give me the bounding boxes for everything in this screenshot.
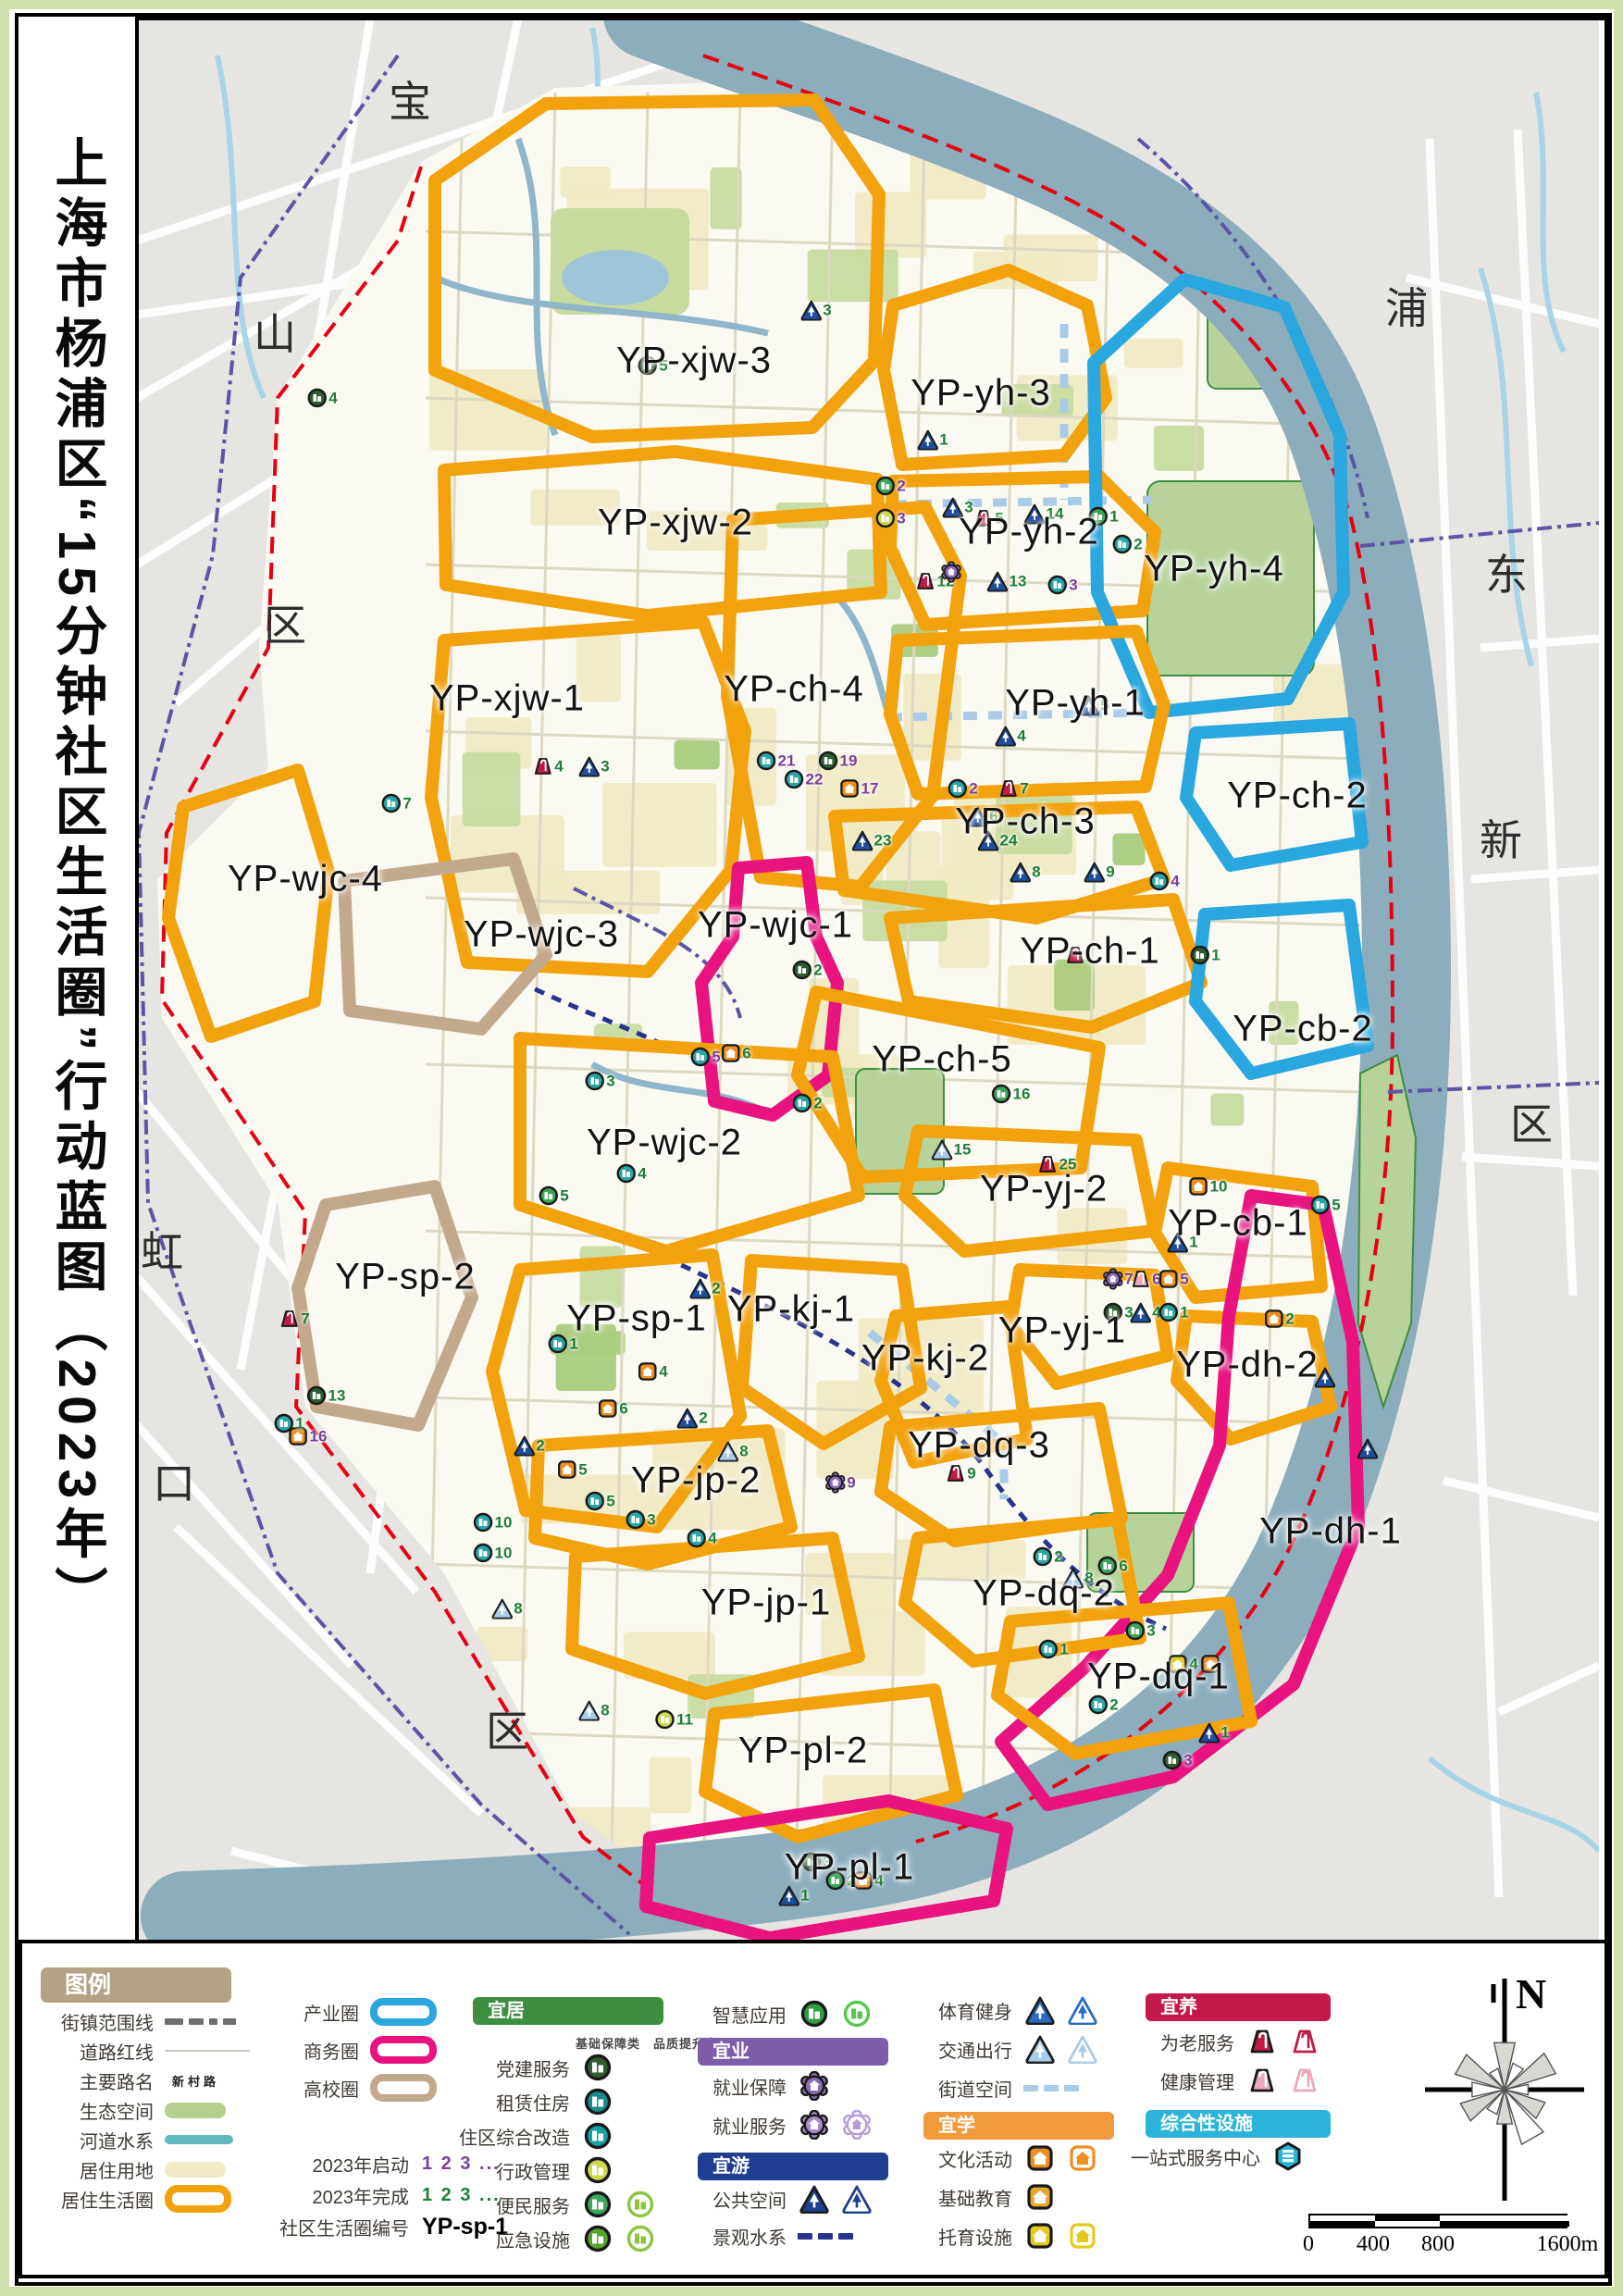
legend-item: 就业服务: [683, 2112, 872, 2138]
legend-item: 街道空间: [909, 2075, 1079, 2101]
zone-label-YP-ch-1: YP-ch-1: [1020, 931, 1160, 973]
legend-item-label: 高校圈: [274, 2075, 359, 2102]
facility-icon: 10: [473, 1512, 513, 1533]
legend-item-label: 住区综合改造: [457, 2123, 570, 2150]
facility-icon: 2: [791, 960, 822, 981]
facility-icon: 13: [987, 571, 1027, 592]
facility-icon: 3: [800, 300, 831, 321]
facility-icon: 4: [995, 726, 1025, 747]
facility-icon: 6: [597, 1398, 627, 1420]
legend-item: 高校圈: [274, 2075, 437, 2101]
facility-icon: 10: [473, 1543, 513, 1564]
facility-icon: 7: [380, 793, 411, 814]
legend-section-badge: 宜学: [923, 2112, 1114, 2140]
zone-label-YP-dh-2: YP-dh-2: [1176, 1345, 1319, 1386]
legend-item-label: 2023年启动: [261, 2151, 409, 2178]
north-label: N: [1516, 1969, 1546, 2018]
legend-item-label: 道路红线: [43, 2038, 154, 2065]
facility-icon: 4: [615, 1163, 646, 1185]
legend-item: 便民服务: [457, 2191, 655, 2217]
legend-section-badge: 宜养: [1146, 1993, 1331, 2021]
facility-icon: 7: [997, 778, 1028, 800]
legend-subheaders: 基础保障类 品质提升类: [576, 2034, 718, 2052]
facility-icon: 1: [1198, 1722, 1229, 1744]
title-panel: 上海市杨浦区“15分钟社区生活圈”行动蓝图（2023年）: [19, 17, 139, 1940]
legend-item: 为老服务: [1131, 2029, 1319, 2054]
legend-item: 体育健身: [909, 1997, 1097, 2023]
facility-icon: 5: [538, 1185, 568, 1207]
compass-rose: [1419, 1977, 1595, 2208]
zone-label-YP-dq-3: YP-dq-3: [908, 1425, 1050, 1467]
scale-bar: 04008001600m: [1308, 2214, 1579, 2269]
facility-icon: 5: [556, 1459, 587, 1481]
legend-item-label: 基础教育: [909, 2184, 1012, 2211]
zone-label-YP-cb-1: YP-cb-1: [1168, 1203, 1308, 1245]
facility-icon: 9: [1084, 862, 1114, 883]
zone-label-YP-ch-4: YP-ch-4: [724, 669, 864, 711]
facility-icon: 2: [874, 476, 905, 497]
zone-label-YP-yh-4: YP-yh-4: [1144, 549, 1284, 590]
zone-label-YP-pl-1: YP-pl-1: [785, 1847, 914, 1889]
zone-label-YP-wjc-4: YP-wjc-4: [228, 859, 383, 900]
facility-icon: 3: [625, 1509, 655, 1531]
legend-item: 河道水系: [43, 2127, 233, 2153]
legend-item-label: 便民服务: [457, 2191, 570, 2218]
legend-item: 生态空间: [43, 2097, 226, 2123]
zone-label-YP-cb-2: YP-cb-2: [1233, 1009, 1373, 1050]
legend-item-label: 为老服务: [1131, 2029, 1234, 2055]
zone-label-YP-xjw-3: YP-xjw-3: [616, 341, 772, 382]
legend-item: 行政管理: [457, 2157, 613, 2183]
legend-item: 基础教育: [909, 2184, 1055, 2210]
facility-icon: 19: [818, 751, 858, 772]
scale-label: 1600m: [1537, 2232, 1599, 2257]
district-name-char: 区: [1510, 1091, 1553, 1152]
zone-label-YP-yh-1: YP-yh-1: [1005, 683, 1146, 725]
scale-label: 400: [1357, 2232, 1390, 2257]
legend-item: 景观水系: [683, 2223, 853, 2249]
zone-label-YP-wjc-3: YP-wjc-3: [464, 914, 619, 956]
zone-label-YP-ch-5: YP-ch-5: [872, 1039, 1012, 1081]
zone-label-YP-jp-2: YP-jp-2: [631, 1460, 761, 1502]
facility-icon: [941, 562, 962, 583]
legend-item-label: 2023年完成: [261, 2182, 409, 2209]
facility-icon: 4: [532, 756, 563, 777]
zone-label-YP-sp-1: YP-sp-1: [566, 1298, 707, 1340]
legend-item-label: 文化活动: [909, 2145, 1012, 2172]
page-title: 上海市杨浦区“15分钟社区生活圈”行动蓝图（2023年）: [39, 135, 115, 1626]
facility-icon: 17: [839, 778, 879, 800]
legend-item: 居住生活圈: [43, 2186, 231, 2212]
facility-icon: 2: [1032, 1546, 1062, 1568]
legend-item-label: 应急设施: [457, 2226, 570, 2253]
facility-icon: 6: [720, 1043, 750, 1064]
legend-item-label: 居住生活圈: [43, 2186, 154, 2213]
legend-item: 交通出行: [909, 2036, 1097, 2062]
zone-label-YP-yh-3: YP-yh-3: [911, 373, 1051, 415]
legend-item-label: 河道水系: [43, 2127, 154, 2153]
legend-item: 应急设施: [457, 2226, 655, 2252]
legend-item-label: 租赁住房: [457, 2089, 570, 2116]
zone-label-YP-wjc-2: YP-wjc-2: [587, 1123, 742, 1164]
facility-icon: 2: [514, 1435, 544, 1457]
legend-item: 产业圈: [274, 1999, 437, 2025]
zone-label-YP-ch-2: YP-ch-2: [1227, 776, 1368, 817]
zone-label-YP-kj-1: YP-kj-1: [727, 1289, 855, 1331]
facility-icon: 7: [1102, 1269, 1133, 1290]
zone-label-YP-jp-1: YP-jp-1: [701, 1582, 831, 1624]
legend-section-badge: 宜业: [698, 2038, 888, 2066]
legend: 图例 街镇范围线道路红线主要路名新村路生态空间河道水系居住用地居住生活圈产业圈商…: [19, 1940, 1608, 2278]
facility-icon: 8: [717, 1441, 748, 1462]
facility-icon: 4: [686, 1528, 716, 1549]
district-name-char: 虹: [141, 1219, 183, 1280]
legend-item: 文化活动: [909, 2145, 1097, 2171]
legend-item-label: 党建服务: [457, 2054, 570, 2081]
facility-icon: 1: [1037, 1639, 1068, 1660]
zone-label-YP-ch-3: YP-ch-3: [955, 801, 1096, 843]
legend-item: 街镇范围线: [43, 2008, 236, 2034]
map-layers: [137, 14, 1599, 1940]
legend-item-label: 一站式服务中心: [1120, 2143, 1260, 2170]
legend-item: 托育设施: [909, 2223, 1097, 2249]
legend-section-badge: 宜游: [698, 2153, 888, 2180]
legend-item-label: 街道空间: [909, 2075, 1012, 2102]
legend-item: 党建服务: [457, 2054, 613, 2080]
legend-item-label: 托育设施: [909, 2223, 1012, 2250]
zone-label-YP-xjw-2: YP-xjw-2: [598, 503, 753, 544]
facility-icon: 4: [1130, 1302, 1160, 1323]
scale-band: [1308, 2214, 1567, 2228]
district-name-char: 口: [153, 1450, 195, 1511]
facility-icon: 11: [654, 1709, 693, 1731]
legend-item-label: 主要路名: [43, 2067, 154, 2094]
zone-label-YP-dq-1: YP-dq-1: [1087, 1657, 1230, 1698]
legend-item: 主要路名新村路: [43, 2067, 219, 2093]
legend-header: 图例: [41, 1967, 231, 2003]
legend-item-label: 居住用地: [43, 2156, 154, 2183]
zone-label-YP-wjc-1: YP-wjc-1: [698, 905, 853, 947]
district-name-char: 新: [1480, 807, 1522, 868]
facility-icon: 3: [874, 508, 905, 529]
legend-item-label: 街镇范围线: [43, 2008, 154, 2035]
facility-icon: 21: [756, 751, 796, 772]
legend-item-label: 社区生活圈编号: [261, 2214, 409, 2240]
legend-item: 公共空间: [683, 2186, 872, 2212]
facility-icon: 1: [917, 429, 948, 451]
facility-icon: 13: [306, 1385, 346, 1407]
facility-icon: 23: [852, 830, 892, 851]
facility-icon: 2: [676, 1408, 707, 1429]
facility-icon: 22: [784, 769, 824, 790]
legend-item-label: 智慧应用: [683, 2001, 787, 2028]
zone-label-YP-dq-2: YP-dq-2: [973, 1573, 1115, 1615]
legend-item: 商务圈: [274, 2037, 437, 2063]
legend-item: 智慧应用: [683, 2001, 872, 2027]
facility-icon: 1: [1189, 945, 1220, 966]
compass: N: [1419, 1977, 1595, 2208]
facility-icon: 2: [1263, 1309, 1294, 1330]
facility-icon: 5: [1309, 1195, 1340, 1216]
legend-section-badge: 综合性设施: [1146, 2110, 1331, 2138]
facility-icon: 15: [932, 1139, 972, 1160]
legend-item: 居住用地: [43, 2156, 226, 2182]
facility-icon: 1: [273, 1413, 304, 1434]
zone-label-YP-yh-2: YP-yh-2: [959, 512, 1099, 553]
legend-item-label: 产业圈: [274, 1999, 359, 2026]
facility-icon: 2: [1111, 534, 1142, 555]
district-name-char: 区: [264, 592, 306, 653]
district-name-char: 区: [486, 1698, 528, 1759]
facility-icon: 2: [947, 778, 977, 800]
zone-label-YP-xjw-1: YP-xjw-1: [429, 678, 585, 720]
legend-item-label: 就业服务: [683, 2112, 787, 2139]
legend-item: 健康管理: [1131, 2067, 1319, 2093]
scale-label: 800: [1421, 2232, 1455, 2257]
legend-item-label: 商务圈: [274, 2037, 359, 2064]
facility-icon: 7: [279, 1309, 309, 1330]
legend-section-badge: 宜居: [473, 1997, 663, 2025]
legend-item-label: 交通出行: [909, 2036, 1012, 2063]
district-name-char: 东: [1485, 541, 1528, 602]
facility-icon: 16: [991, 1084, 1031, 1105]
legend-item-label: 就业保障: [683, 2073, 787, 2100]
facility-icon: 5: [689, 1047, 720, 1068]
zone-label-YP-yj-2: YP-yj-2: [980, 1169, 1108, 1210]
zone-label-YP-dh-1: YP-dh-1: [1259, 1511, 1402, 1553]
facility-icon: 3: [1124, 1620, 1155, 1642]
facility-icon: 4: [306, 388, 337, 409]
facility-icon: 3: [584, 1071, 614, 1092]
legend-item: 就业保障: [683, 2073, 829, 2099]
facility-icon: 3: [1161, 1750, 1192, 1771]
facility-icon: 8: [491, 1598, 522, 1620]
legend-item: 一站式服务中心: [1120, 2143, 1303, 2169]
legend-item-label: 体育健身: [909, 1997, 1012, 2024]
legend-item-label: 景观水系: [683, 2223, 787, 2250]
facility-icon: 10: [1188, 1176, 1228, 1198]
zone-label-YP-sp-2: YP-sp-2: [335, 1257, 476, 1298]
legend-item: 租赁住房: [457, 2089, 613, 2115]
legend-item: 住区综合改造: [457, 2123, 613, 2149]
facility-icon: 6: [1130, 1269, 1160, 1290]
legend-item: 道路红线: [43, 2038, 250, 2064]
facility-icon: 8: [1010, 862, 1040, 883]
legend-item-label: 公共空间: [683, 2186, 787, 2213]
facility-icon: 1: [1158, 1302, 1188, 1323]
facility-icon: 5: [584, 1491, 614, 1512]
facility-icon: 3: [1047, 575, 1077, 596]
legend-item-label: 生态空间: [43, 2097, 154, 2124]
scale-label: 0: [1303, 2232, 1314, 2257]
facility-icon: [1357, 1438, 1379, 1459]
facility-icon: 4: [1148, 871, 1179, 892]
legend-item-label: 健康管理: [1131, 2067, 1234, 2094]
facility-icon: 3: [578, 756, 609, 777]
district-name-char: 宝: [389, 68, 431, 130]
facility-icon: 4: [637, 1361, 667, 1383]
facility-icon: 8: [578, 1700, 609, 1721]
zone-label-YP-kj-2: YP-kj-2: [861, 1338, 989, 1380]
facility-icon: 9: [824, 1472, 855, 1494]
district-name-char: 山: [254, 301, 296, 362]
legend-item-label: 行政管理: [457, 2157, 570, 2184]
zone-label-YP-pl-2: YP-pl-2: [738, 1731, 868, 1772]
facility-icon: 5: [1158, 1269, 1188, 1290]
facility-icon: 2: [689, 1278, 720, 1299]
district-name-char: 浦: [1385, 275, 1428, 336]
zone-label-YP-yj-1: YP-yj-1: [998, 1310, 1126, 1352]
facility-icon: 2: [791, 1093, 822, 1114]
